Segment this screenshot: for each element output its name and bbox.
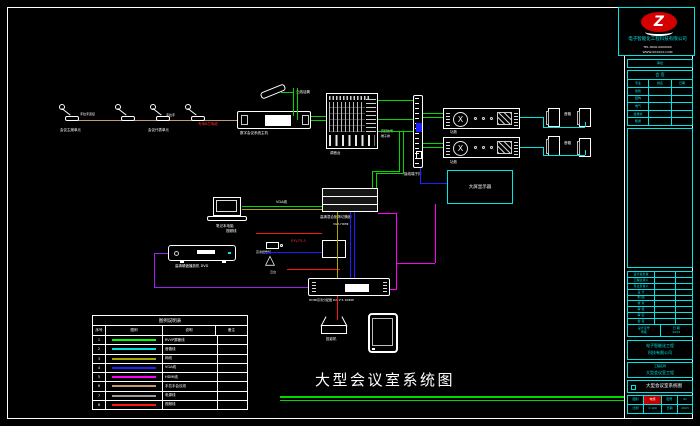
amp2-right-vent	[514, 140, 518, 155]
wire-trunk-hdmi-v	[396, 213, 397, 290]
approve-label: 审批	[628, 60, 692, 67]
touch-panel	[368, 313, 398, 353]
amp2-vent-grid	[497, 141, 512, 154]
legend-note	[217, 345, 247, 353]
title-underline-thick	[280, 396, 624, 398]
legend-line	[112, 339, 156, 341]
legend-sample	[105, 355, 162, 363]
legend-desc: 音箱线	[162, 345, 217, 353]
wire-laptop-vga-olive	[242, 209, 322, 210]
conference-mic-4	[184, 103, 208, 123]
legend-desc: RVVP屏蔽线	[162, 336, 217, 344]
blank-cell	[671, 118, 692, 125]
mixer-console	[326, 93, 378, 149]
sheet-title-icon	[631, 385, 636, 390]
legend-note	[217, 401, 247, 409]
speaker-label-1: 音箱	[564, 112, 571, 116]
legend-sample	[105, 373, 162, 381]
wire-camera-video	[256, 233, 322, 234]
amp2-knob	[482, 146, 485, 149]
mic-group2-label: 会议代表单元	[148, 128, 169, 132]
signoff-col: 专业	[628, 80, 648, 87]
project-name: 大型会议室工程	[628, 371, 692, 376]
legend-num: 8	[93, 401, 105, 409]
drawing-title: 大型会议室系统图	[315, 372, 455, 389]
splitter-label: HDMI高清分配器 DA 1*4 1080P	[309, 299, 354, 302]
wire-dvd-v	[154, 253, 155, 287]
legend-line	[112, 367, 156, 369]
wire-amp1-spk-stub	[585, 122, 586, 127]
legend-row: 3 网线	[93, 354, 247, 363]
legend-note	[217, 355, 247, 363]
signoff-col: 日期	[671, 80, 692, 87]
sheet-no-label: 图号	[661, 396, 677, 404]
wire-wirelessmic-v2	[297, 88, 298, 120]
terminal-white-chip	[416, 151, 422, 159]
terminal-strip	[413, 95, 423, 168]
laptop-screen	[216, 200, 237, 212]
splitter-right-vent	[383, 282, 387, 292]
blank-cell	[648, 118, 671, 125]
amp2-left-vent	[446, 140, 450, 155]
wire-trunk-jog-b	[376, 173, 404, 174]
wire-display-hdmi-v	[435, 204, 436, 263]
wire-bus-amp2-a	[423, 143, 443, 144]
discipline: 电气	[628, 103, 648, 110]
mic-group1-label: 会议主席单元	[60, 128, 81, 132]
amp1-left-vent	[446, 111, 450, 126]
wire-mixer-bus-3	[378, 131, 413, 132]
legend-num: 1	[93, 336, 105, 344]
syv-wire-label: SYV75-5	[291, 239, 306, 243]
conference-host-unit	[237, 111, 311, 129]
legend-desc: 网线	[162, 355, 217, 363]
power-amp-1: X	[443, 108, 520, 129]
sheet-title-box: 大型会议室系统图	[627, 380, 693, 393]
camera-lens	[280, 244, 283, 247]
legend-desc: 手拉手会议线	[162, 382, 217, 390]
legend-num: 4	[93, 364, 105, 372]
legend-title-row: 图例说明表	[93, 316, 247, 325]
wire-display-hdmi-h	[396, 263, 435, 264]
legend-header: 说明	[162, 326, 215, 335]
blank-cell	[648, 103, 671, 110]
wire-matrix-in-a	[372, 171, 373, 188]
wire-mixer-bus-2	[378, 119, 413, 120]
signoff-table: 会 签 专业 姓名 日期 建筑 结构 电气 给排水 暖通	[627, 70, 693, 126]
signoff-col: 姓名	[648, 80, 671, 87]
legend-sample	[105, 336, 162, 344]
legend-row: 6 手拉手会议线	[93, 381, 247, 390]
legend-title: 图例说明表	[93, 316, 247, 325]
terminal-label: 接线端子排	[404, 172, 422, 176]
mixer-channel-strips	[329, 102, 365, 132]
legend-table: 图例说明表 序号 图例 说明 备注 1 RVVP屏蔽线 2 音箱线 3 网线 4	[92, 315, 248, 410]
host-display	[265, 115, 291, 126]
dvd-led	[228, 252, 231, 254]
logo-box: Z 电子智能化工程科技有限公司 TEL 0000-0000000 WWW.XXX…	[618, 7, 695, 56]
company-box: 电子智能化工程 科技有限公司	[627, 340, 693, 360]
speaker-side	[546, 139, 549, 154]
mixer-note2: 端子排	[381, 135, 390, 138]
wire-trunk-green-b	[403, 131, 404, 173]
pantilt-icon: △	[265, 254, 275, 267]
amp2-knob	[490, 146, 493, 149]
speaker-1	[548, 108, 560, 127]
legend-desc: 电源线	[162, 392, 217, 400]
wire-matrix-hdmi-h	[378, 213, 396, 214]
wire-dvd-h	[154, 287, 308, 288]
wireless-mic-label: 无线话筒	[296, 90, 310, 94]
sheet-no-value: 01	[677, 396, 692, 404]
wire-camera-vga	[263, 252, 322, 253]
display-screen: 大屏显示器	[447, 170, 513, 204]
discipline: 结构	[628, 96, 648, 103]
wire-mixer-bus-1	[378, 100, 413, 101]
legend-row: 8 视频线	[93, 400, 247, 409]
titleblock-approve-strip: 审批	[627, 59, 693, 68]
mic-link2-label: 手拉手	[166, 114, 175, 117]
wire-amp1-spk-h2	[543, 127, 585, 128]
matrix-label: 高清混合矩阵切换器	[320, 215, 352, 219]
logo-company: 电子智能化工程科技有限公司	[621, 37, 694, 42]
pantilt-label: 云台	[270, 271, 276, 274]
laptop-base	[207, 216, 247, 221]
company-line2: 科技有限公司	[628, 351, 692, 356]
wire-amp2-spk-h2	[543, 155, 585, 156]
sheet-title-text: 大型会议室系统图	[637, 384, 691, 389]
legend-num: 7	[93, 392, 105, 400]
discipline: 给排水	[628, 111, 648, 118]
speaker-3	[548, 136, 560, 156]
legend-row: 1 RVVP屏蔽线	[93, 335, 247, 344]
dvd-foot	[222, 261, 226, 263]
conference-mic-1	[58, 103, 82, 123]
wire-bus-amp2-b	[423, 147, 443, 148]
wire-host-mixer-b	[311, 120, 326, 121]
mic-link1-label: 手拉手连接	[80, 113, 95, 116]
legend-line	[112, 358, 156, 360]
host-right-port	[302, 115, 309, 125]
wire-amp1-spk-h1	[520, 117, 543, 118]
wire-matrix-rack-blue-a	[350, 212, 351, 278]
legend-num: 6	[93, 382, 105, 390]
dvd-knob	[174, 251, 179, 256]
matrix-switcher	[322, 188, 378, 212]
dvd-display	[197, 250, 215, 254]
projector-body	[321, 325, 347, 334]
touch-panel-screen	[372, 318, 393, 346]
legend-line	[112, 348, 156, 350]
projector-label: 投影机	[326, 337, 337, 341]
scale-value: 1:100	[643, 405, 661, 413]
legend-line	[112, 404, 156, 406]
blank-cell	[648, 111, 671, 118]
amp2-label: 功放	[450, 160, 457, 164]
signoff-title: 会 签	[628, 71, 692, 79]
legend-num: 2	[93, 345, 105, 353]
legend-note	[217, 392, 247, 400]
vga-wire-label: VGA线	[276, 200, 287, 204]
dvd-foot	[180, 261, 184, 263]
legend-line	[112, 395, 156, 397]
matrix-sub-label: VGA HDMI	[333, 223, 348, 226]
legend-row: 4 VGA线	[93, 363, 247, 372]
splitter-left-vent	[312, 282, 316, 292]
mic-cable-label: 专用8芯电缆	[198, 122, 218, 126]
legend-desc: HDMI线	[162, 373, 217, 381]
blank-cell	[671, 111, 692, 118]
wire-bus-amp1-b	[423, 117, 443, 118]
date-cell: 日 期 2023	[660, 325, 693, 336]
cert-cell: 设计证号 甲级	[628, 325, 660, 336]
legend-sample	[105, 392, 162, 400]
amp1-knob	[474, 117, 477, 120]
mixer-top-ticks	[329, 96, 369, 100]
project-label: 工程名称	[628, 365, 692, 368]
scale-label: 比例	[628, 405, 643, 413]
hdmi-splitter	[308, 278, 390, 296]
legend-num: 5	[93, 373, 105, 381]
dvd-label: 高清硬盘播放机 DVD	[175, 264, 208, 268]
wire-trunk-jog-a	[372, 171, 400, 172]
legend-row: 2 音箱线	[93, 344, 247, 353]
conference-host-label: 数字会议系统主机	[240, 131, 268, 135]
legend-header: 备注	[215, 326, 247, 335]
sheet-type-label: 图别	[628, 396, 643, 404]
amp1-fan-icon: X	[453, 112, 468, 127]
laptop	[213, 197, 241, 216]
amp1-label: 功放	[450, 130, 457, 134]
blank-cell	[671, 103, 692, 110]
date2-value: 2023	[677, 405, 692, 413]
wire-hdmi-rack-stub	[390, 289, 396, 290]
splitter-display	[345, 284, 369, 292]
wire-display-vga-h	[420, 183, 447, 184]
mixer-fader-row	[329, 135, 375, 146]
wire-display-vga-v	[420, 168, 421, 183]
blank-cell	[648, 88, 671, 95]
camera-icon	[266, 242, 279, 249]
legend-sample	[105, 382, 162, 390]
discipline: 暖通	[628, 118, 648, 125]
blank-cell	[671, 88, 692, 95]
wire-amp2-spk-h1	[520, 147, 543, 148]
wire-bus-amp1-a	[423, 113, 443, 114]
legend-note	[217, 382, 247, 390]
power-amp-2: X	[443, 137, 520, 158]
amp2-knob	[474, 146, 477, 149]
laptop-label: 笔记本电脑	[216, 224, 234, 228]
legend-header-row: 序号 图例 说明 备注	[93, 325, 247, 335]
legend-note	[217, 336, 247, 344]
wire-dvd-stub	[154, 253, 168, 254]
speaker-side	[546, 111, 549, 125]
project-box: 工程名称 大型会议室工程	[627, 362, 693, 378]
logo-line2: WWW.XXXXXX.COM	[621, 51, 694, 54]
roles-table: 设计总负责 工程主持人 专业负责人 设 计 制 图 校 对 审 核 审 定 会 …	[627, 271, 693, 337]
matrix-divider	[323, 196, 377, 197]
legend-desc: 视频线	[162, 401, 217, 409]
conference-mic-2	[114, 103, 138, 123]
title-underline-thin	[280, 400, 624, 401]
video-wire-label: 视频线	[226, 229, 237, 233]
logo-swoosh	[645, 28, 673, 36]
touch-panel-button	[372, 348, 375, 350]
controller-box	[322, 240, 346, 258]
titleblock-empty-panel	[627, 128, 693, 268]
wire-pantilt	[287, 269, 340, 270]
speaker-side	[577, 141, 580, 155]
cert-value: 甲级	[641, 331, 647, 334]
mixer-label: 调音台	[330, 151, 341, 155]
company-line1: 电子智能化工程	[628, 344, 692, 349]
legend-desc: VGA线	[162, 364, 217, 372]
legend-row: 7 电源线	[93, 391, 247, 400]
wire-amp2-spk-stub	[585, 150, 586, 155]
dvd-player	[168, 245, 236, 261]
speaker-label-2: 音箱	[564, 141, 571, 145]
amp1-vent-grid	[497, 112, 512, 125]
terminal-blue-chip	[416, 123, 422, 132]
wire-amp1-spk-v	[543, 117, 544, 127]
wire-rack-projector	[337, 296, 338, 320]
amp2-fan-icon: X	[453, 141, 468, 156]
sheet-type-value: 电施	[643, 396, 661, 404]
number-strip: 图别 电施 图号 01 比例 1:100 日期 2023	[627, 395, 693, 414]
legend-line	[112, 385, 156, 387]
speaker-side	[577, 111, 580, 125]
legend-sample	[105, 364, 162, 372]
amp1-knob	[482, 117, 485, 120]
wire-amp2-spk-v	[543, 147, 544, 155]
blank-cell	[648, 96, 671, 103]
discipline: 建筑	[628, 88, 648, 95]
legend-header: 序号	[93, 326, 105, 335]
wire-matrix-rack-blue-b	[354, 212, 355, 278]
legend-num: 3	[93, 355, 105, 363]
wire-host-mixer-a	[311, 116, 326, 117]
legend-row: 5 HDMI线	[93, 372, 247, 381]
wire-matrix-in-b	[376, 173, 377, 188]
amp1-knob	[490, 117, 493, 120]
date2-label: 日期	[661, 405, 677, 413]
legend-note	[217, 373, 247, 381]
wire-wirelessmic-h	[281, 92, 293, 93]
titleblock-divider	[624, 7, 625, 419]
legend-sample	[105, 345, 162, 353]
wire-laptop-vga-green	[242, 206, 322, 207]
legend-header: 图例	[105, 326, 162, 335]
blank-cell	[671, 96, 692, 103]
host-left-port	[241, 115, 248, 125]
amp1-right-vent	[514, 111, 518, 126]
wire-wirelessmic-v1	[293, 88, 294, 116]
wire-matrix-rack-olive	[337, 212, 338, 278]
date-value: 2023	[672, 331, 680, 334]
legend-line	[112, 376, 156, 378]
legend-sample	[105, 401, 162, 409]
wire-trunk-green-a	[399, 131, 400, 171]
matrix-divider	[323, 204, 377, 205]
cad-drawing-sheet: Z 电子智能化工程科技有限公司 TEL 0000-0000000 WWW.XXX…	[0, 0, 700, 426]
logo-line1: TEL 0000-0000000	[621, 46, 694, 49]
mixer-master-section	[366, 96, 376, 132]
legend-note	[217, 364, 247, 372]
display-label: 大屏显示器	[448, 185, 512, 190]
